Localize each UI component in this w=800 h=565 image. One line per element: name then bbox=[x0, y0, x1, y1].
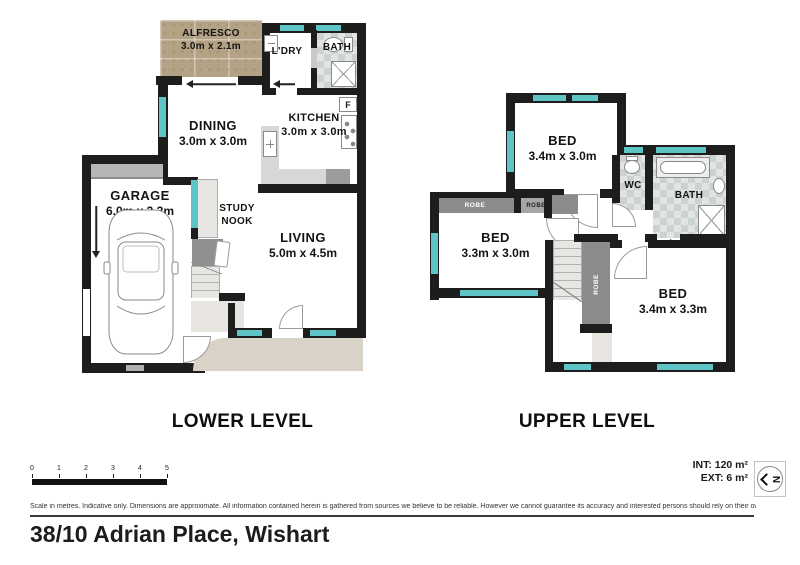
room-label-laundry: L'DRY bbox=[262, 46, 312, 59]
porch bbox=[193, 338, 363, 371]
room-dims: 3.3m x 3.0m bbox=[448, 246, 543, 261]
wall bbox=[82, 155, 168, 164]
scale-tick-label: 5 bbox=[162, 465, 172, 472]
wall bbox=[191, 228, 198, 239]
wall bbox=[357, 23, 366, 338]
room-dims: 3.0m x 2.1m bbox=[160, 41, 262, 54]
room-label-dining: DINING 3.0m x 3.0m bbox=[163, 118, 263, 149]
window bbox=[460, 290, 538, 296]
scale-tick-label: 4 bbox=[135, 465, 145, 472]
entry-door-arc bbox=[279, 305, 303, 329]
scale-tick-label: 1 bbox=[54, 465, 64, 472]
room-label-bed2: BED 3.3m x 3.0m bbox=[448, 230, 543, 261]
scale-tick bbox=[59, 474, 60, 478]
shower-icon bbox=[698, 205, 725, 236]
robe-cabinet bbox=[552, 195, 578, 214]
scale-bar-rule bbox=[32, 479, 167, 485]
window bbox=[564, 364, 591, 370]
window bbox=[191, 180, 198, 228]
room-name: LIVING bbox=[248, 230, 358, 246]
room-label-study-nook: STUDY NOOK bbox=[208, 203, 266, 228]
room-name: DINING bbox=[163, 118, 263, 134]
wall bbox=[506, 93, 626, 103]
floorplan-page: ALFRESCO 3.0m x 2.1m L'DRY BATH bbox=[0, 0, 800, 565]
window bbox=[507, 131, 514, 172]
stair-break-line bbox=[553, 282, 582, 302]
car-icon bbox=[103, 206, 179, 358]
scale-tick-label: 0 bbox=[27, 465, 37, 472]
room-label-living: LIVING 5.0m x 4.5m bbox=[248, 230, 358, 261]
address-title: 38/10 Adrian Place, Wishart bbox=[30, 521, 430, 548]
window-opening bbox=[83, 289, 90, 336]
toilet-icon bbox=[624, 160, 640, 174]
bathtub-icon bbox=[656, 157, 710, 178]
wall bbox=[544, 192, 552, 218]
direction-arrow-icon bbox=[273, 80, 295, 88]
room-dims: 3.4m x 3.3m bbox=[622, 302, 724, 317]
ext-area-label: EXT: 6 m² bbox=[640, 472, 748, 484]
scale-tick bbox=[113, 474, 114, 478]
room-dims: 5.0m x 4.5m bbox=[248, 246, 358, 261]
robe-cabinet: ROBE bbox=[436, 198, 514, 213]
fridge-box: F bbox=[339, 97, 357, 112]
fridge-label: F bbox=[345, 100, 351, 110]
room-label-bed1: BED 3.4m x 3.0m bbox=[515, 133, 610, 164]
wall bbox=[612, 155, 620, 203]
scale-tick-label: 3 bbox=[108, 465, 118, 472]
scale-tick bbox=[32, 474, 33, 478]
wall bbox=[610, 240, 622, 248]
room-label-kitchen: KITCHEN 3.0m x 3.0m bbox=[272, 112, 356, 140]
scale-tick bbox=[140, 474, 141, 478]
scale-tick bbox=[167, 474, 168, 478]
room-name: GARAGE bbox=[92, 188, 188, 204]
wall bbox=[726, 145, 735, 372]
int-area-label: INT: 120 m² bbox=[640, 459, 748, 471]
window bbox=[624, 147, 643, 153]
room-label-bath-upper: BATH bbox=[666, 190, 712, 203]
wall bbox=[219, 293, 245, 301]
garage-door bbox=[88, 164, 163, 179]
shower-icon bbox=[331, 61, 356, 87]
window bbox=[310, 330, 336, 336]
room-name-line2: NOOK bbox=[208, 216, 266, 229]
robe-cabinet-vertical: ROBE bbox=[582, 242, 610, 326]
room-dims: 3.0m x 3.0m bbox=[272, 126, 356, 140]
room-dims: 3.0m x 3.0m bbox=[163, 134, 263, 149]
room-label-bed3: BED 3.4m x 3.3m bbox=[622, 286, 724, 317]
robe-label: ROBE bbox=[593, 274, 600, 295]
window bbox=[280, 25, 304, 31]
room-name: BED bbox=[622, 286, 724, 302]
wall bbox=[514, 198, 521, 213]
direction-arrow-icon bbox=[186, 80, 236, 88]
driveway-arrow-icon bbox=[92, 206, 100, 258]
window bbox=[237, 330, 262, 336]
window bbox=[656, 147, 706, 153]
room-label-wc: WC bbox=[618, 180, 648, 193]
window bbox=[431, 233, 438, 274]
window bbox=[572, 95, 598, 101]
room-name: KITCHEN bbox=[272, 112, 356, 126]
lower-level-title: LOWER LEVEL bbox=[150, 411, 335, 433]
divider-line bbox=[30, 515, 754, 517]
wall bbox=[297, 88, 366, 95]
window bbox=[657, 364, 713, 370]
room-dims: 3.4m x 3.0m bbox=[515, 149, 610, 164]
room-label-bath: BATH bbox=[315, 42, 359, 55]
north-compass-icon: N bbox=[754, 461, 786, 497]
room-name: BED bbox=[448, 230, 543, 246]
robe-label: ROBE bbox=[465, 202, 486, 209]
kitchen-counter-dark bbox=[326, 169, 350, 184]
door-sill bbox=[126, 365, 144, 371]
scale-tick-label: 2 bbox=[81, 465, 91, 472]
window bbox=[533, 95, 566, 101]
disclaimer-text: Scale in metres. Indicative only. Dimens… bbox=[30, 503, 756, 510]
wall bbox=[258, 184, 366, 193]
wall bbox=[648, 240, 726, 248]
window bbox=[316, 25, 341, 31]
door-arc bbox=[614, 246, 647, 279]
wall bbox=[545, 240, 553, 372]
room-label-alfresco: ALFRESCO 3.0m x 2.1m bbox=[160, 28, 262, 53]
robe-label: ROBE bbox=[526, 203, 545, 209]
sink-icon bbox=[713, 178, 725, 194]
room-name: ALFRESCO bbox=[160, 28, 262, 41]
wall bbox=[580, 324, 612, 333]
stair-break-line bbox=[191, 262, 222, 274]
upper-level-plan: BED 3.4m x 3.0m WC BATH ROBE bbox=[400, 0, 800, 400]
room-name: BED bbox=[515, 133, 610, 149]
hall-floor bbox=[592, 333, 612, 362]
room-name-line1: STUDY bbox=[208, 203, 266, 216]
scale-tick bbox=[86, 474, 87, 478]
upper-level-title: UPPER LEVEL bbox=[497, 411, 677, 433]
compass-north-letter: N bbox=[770, 475, 781, 482]
wall bbox=[82, 155, 91, 373]
lower-level-plan: ALFRESCO 3.0m x 2.1m L'DRY BATH bbox=[0, 0, 400, 400]
wall bbox=[262, 88, 276, 95]
